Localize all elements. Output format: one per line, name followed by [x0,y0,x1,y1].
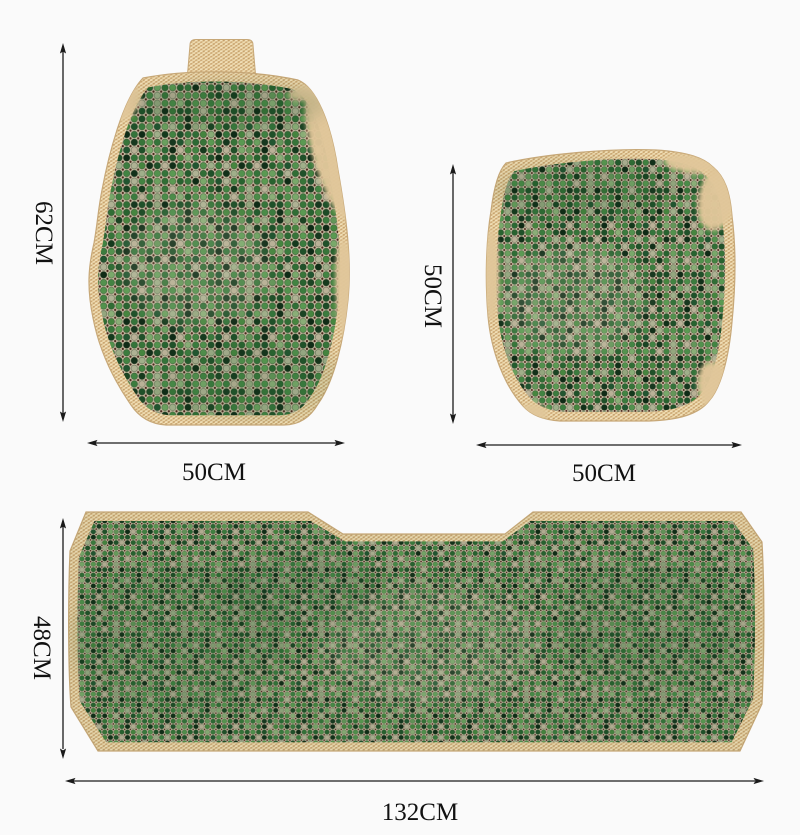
svg-text:50CM: 50CM [419,264,446,328]
svg-text:50CM: 50CM [182,459,246,486]
svg-text:48CM: 48CM [28,616,55,680]
svg-text:50CM: 50CM [572,460,636,487]
svg-text:62CM: 62CM [30,201,57,265]
svg-text:132CM: 132CM [382,799,458,826]
